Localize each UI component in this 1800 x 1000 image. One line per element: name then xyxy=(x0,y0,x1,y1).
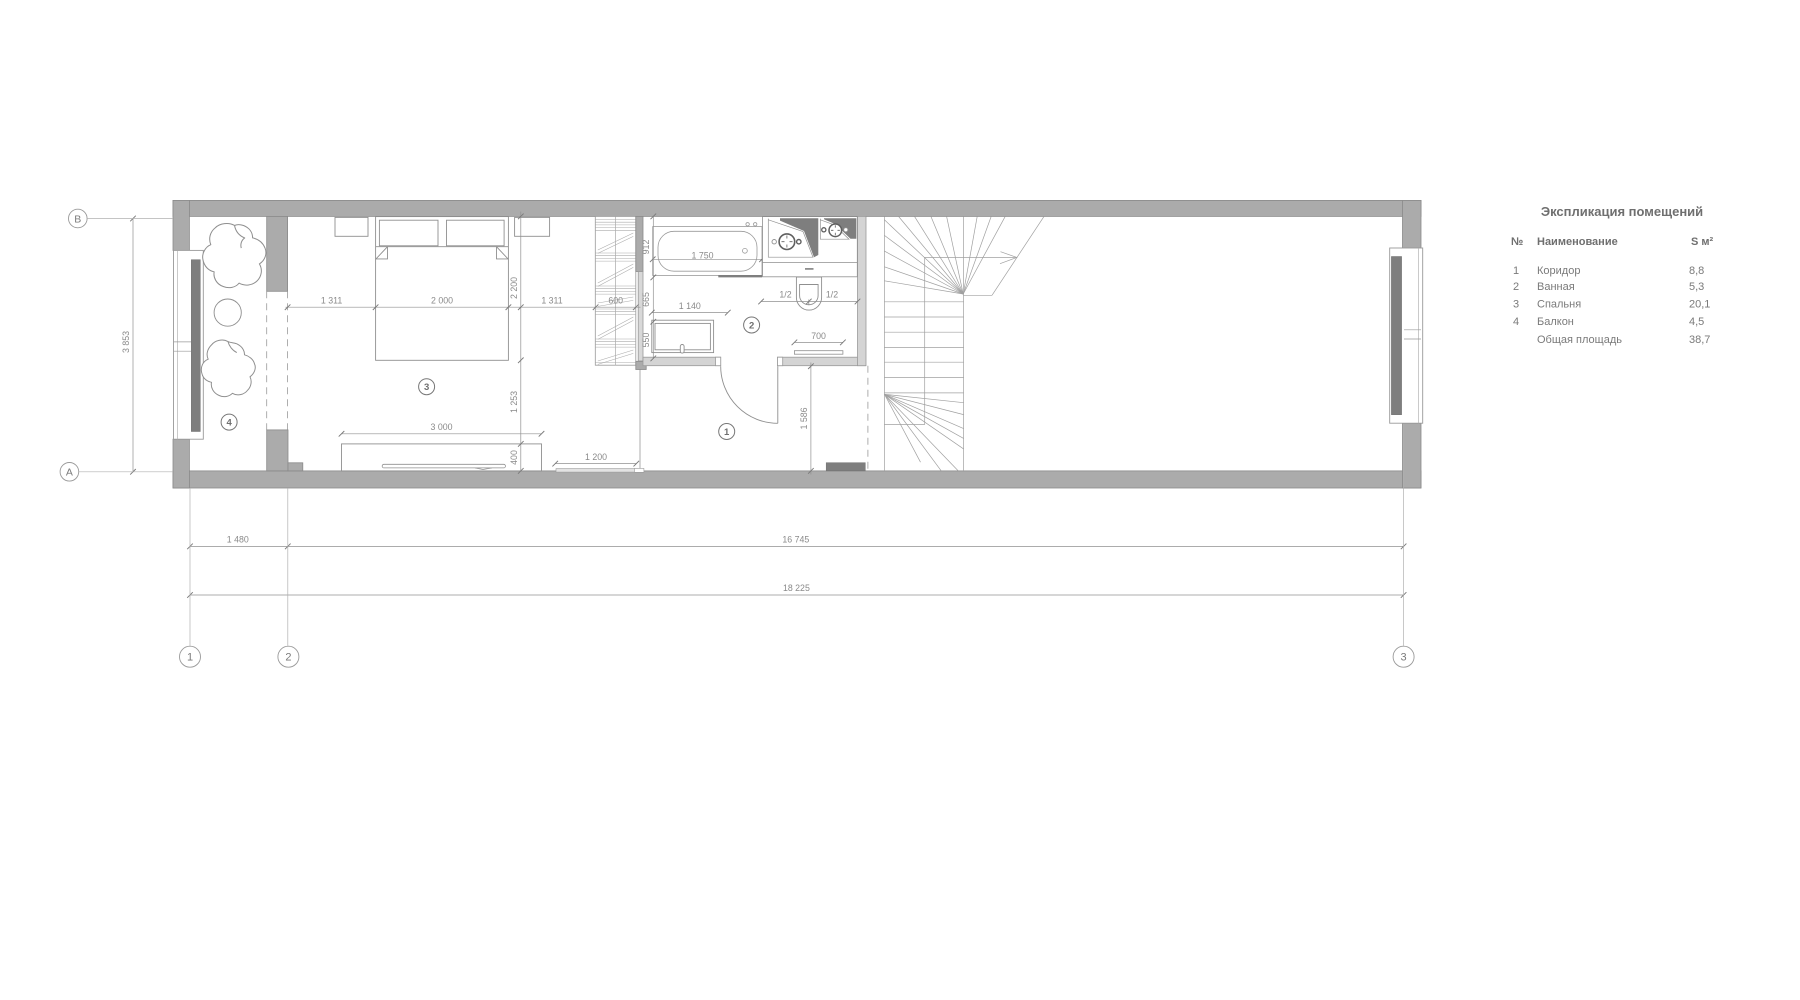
svg-text:S м²: S м² xyxy=(1691,236,1714,248)
svg-text:4: 4 xyxy=(226,418,232,429)
svg-text:3: 3 xyxy=(1401,652,1407,664)
svg-text:400: 400 xyxy=(509,450,519,465)
svg-text:Экспликация помещений: Экспликация помещений xyxy=(1541,204,1703,219)
svg-text:38,7: 38,7 xyxy=(1689,334,1710,346)
svg-text:665: 665 xyxy=(641,292,651,307)
svg-text:3: 3 xyxy=(424,382,429,393)
svg-text:Ванная: Ванная xyxy=(1537,281,1575,293)
svg-text:3 000: 3 000 xyxy=(430,422,452,432)
svg-text:2: 2 xyxy=(749,321,754,332)
svg-text:1 311: 1 311 xyxy=(541,296,562,306)
svg-text:3 853: 3 853 xyxy=(121,331,131,353)
svg-text:1/2: 1/2 xyxy=(826,290,838,300)
svg-text:4,5: 4,5 xyxy=(1689,316,1704,328)
svg-text:700: 700 xyxy=(811,331,826,341)
svg-text:Коридор: Коридор xyxy=(1537,265,1580,277)
svg-text:Спальня: Спальня xyxy=(1537,299,1581,311)
svg-text:1 140: 1 140 xyxy=(679,301,701,311)
svg-text:2: 2 xyxy=(285,652,291,664)
svg-text:Наименование: Наименование xyxy=(1537,236,1618,248)
svg-text:3: 3 xyxy=(1513,299,1519,311)
svg-text:1 253: 1 253 xyxy=(509,391,519,413)
svg-text:1 311: 1 311 xyxy=(321,296,342,306)
svg-text:18 225: 18 225 xyxy=(783,583,810,593)
svg-text:1/2: 1/2 xyxy=(779,290,791,300)
svg-text:600: 600 xyxy=(608,296,623,306)
svg-text:№: № xyxy=(1511,236,1523,248)
svg-text:2: 2 xyxy=(1513,281,1519,293)
svg-text:1: 1 xyxy=(724,427,730,438)
svg-text:4: 4 xyxy=(1513,316,1519,328)
svg-text:Общая площадь: Общая площадь xyxy=(1537,334,1622,346)
svg-text:2 200: 2 200 xyxy=(509,277,519,299)
svg-text:1 480: 1 480 xyxy=(227,535,249,545)
svg-text:1: 1 xyxy=(187,652,193,664)
svg-text:8,8: 8,8 xyxy=(1689,265,1704,277)
svg-text:16 745: 16 745 xyxy=(782,535,809,545)
svg-text:550: 550 xyxy=(641,333,651,348)
svg-text:А: А xyxy=(66,467,73,479)
svg-text:912: 912 xyxy=(641,240,651,255)
svg-text:Балкон: Балкон xyxy=(1537,316,1574,328)
svg-text:20,1: 20,1 xyxy=(1689,299,1710,311)
svg-text:2 000: 2 000 xyxy=(431,296,453,306)
svg-text:1 750: 1 750 xyxy=(691,250,713,260)
svg-text:В: В xyxy=(74,213,81,225)
svg-text:5,3: 5,3 xyxy=(1689,281,1704,293)
svg-text:1: 1 xyxy=(1513,265,1519,277)
svg-text:1 200: 1 200 xyxy=(585,452,607,462)
svg-text:1 586: 1 586 xyxy=(799,407,809,429)
